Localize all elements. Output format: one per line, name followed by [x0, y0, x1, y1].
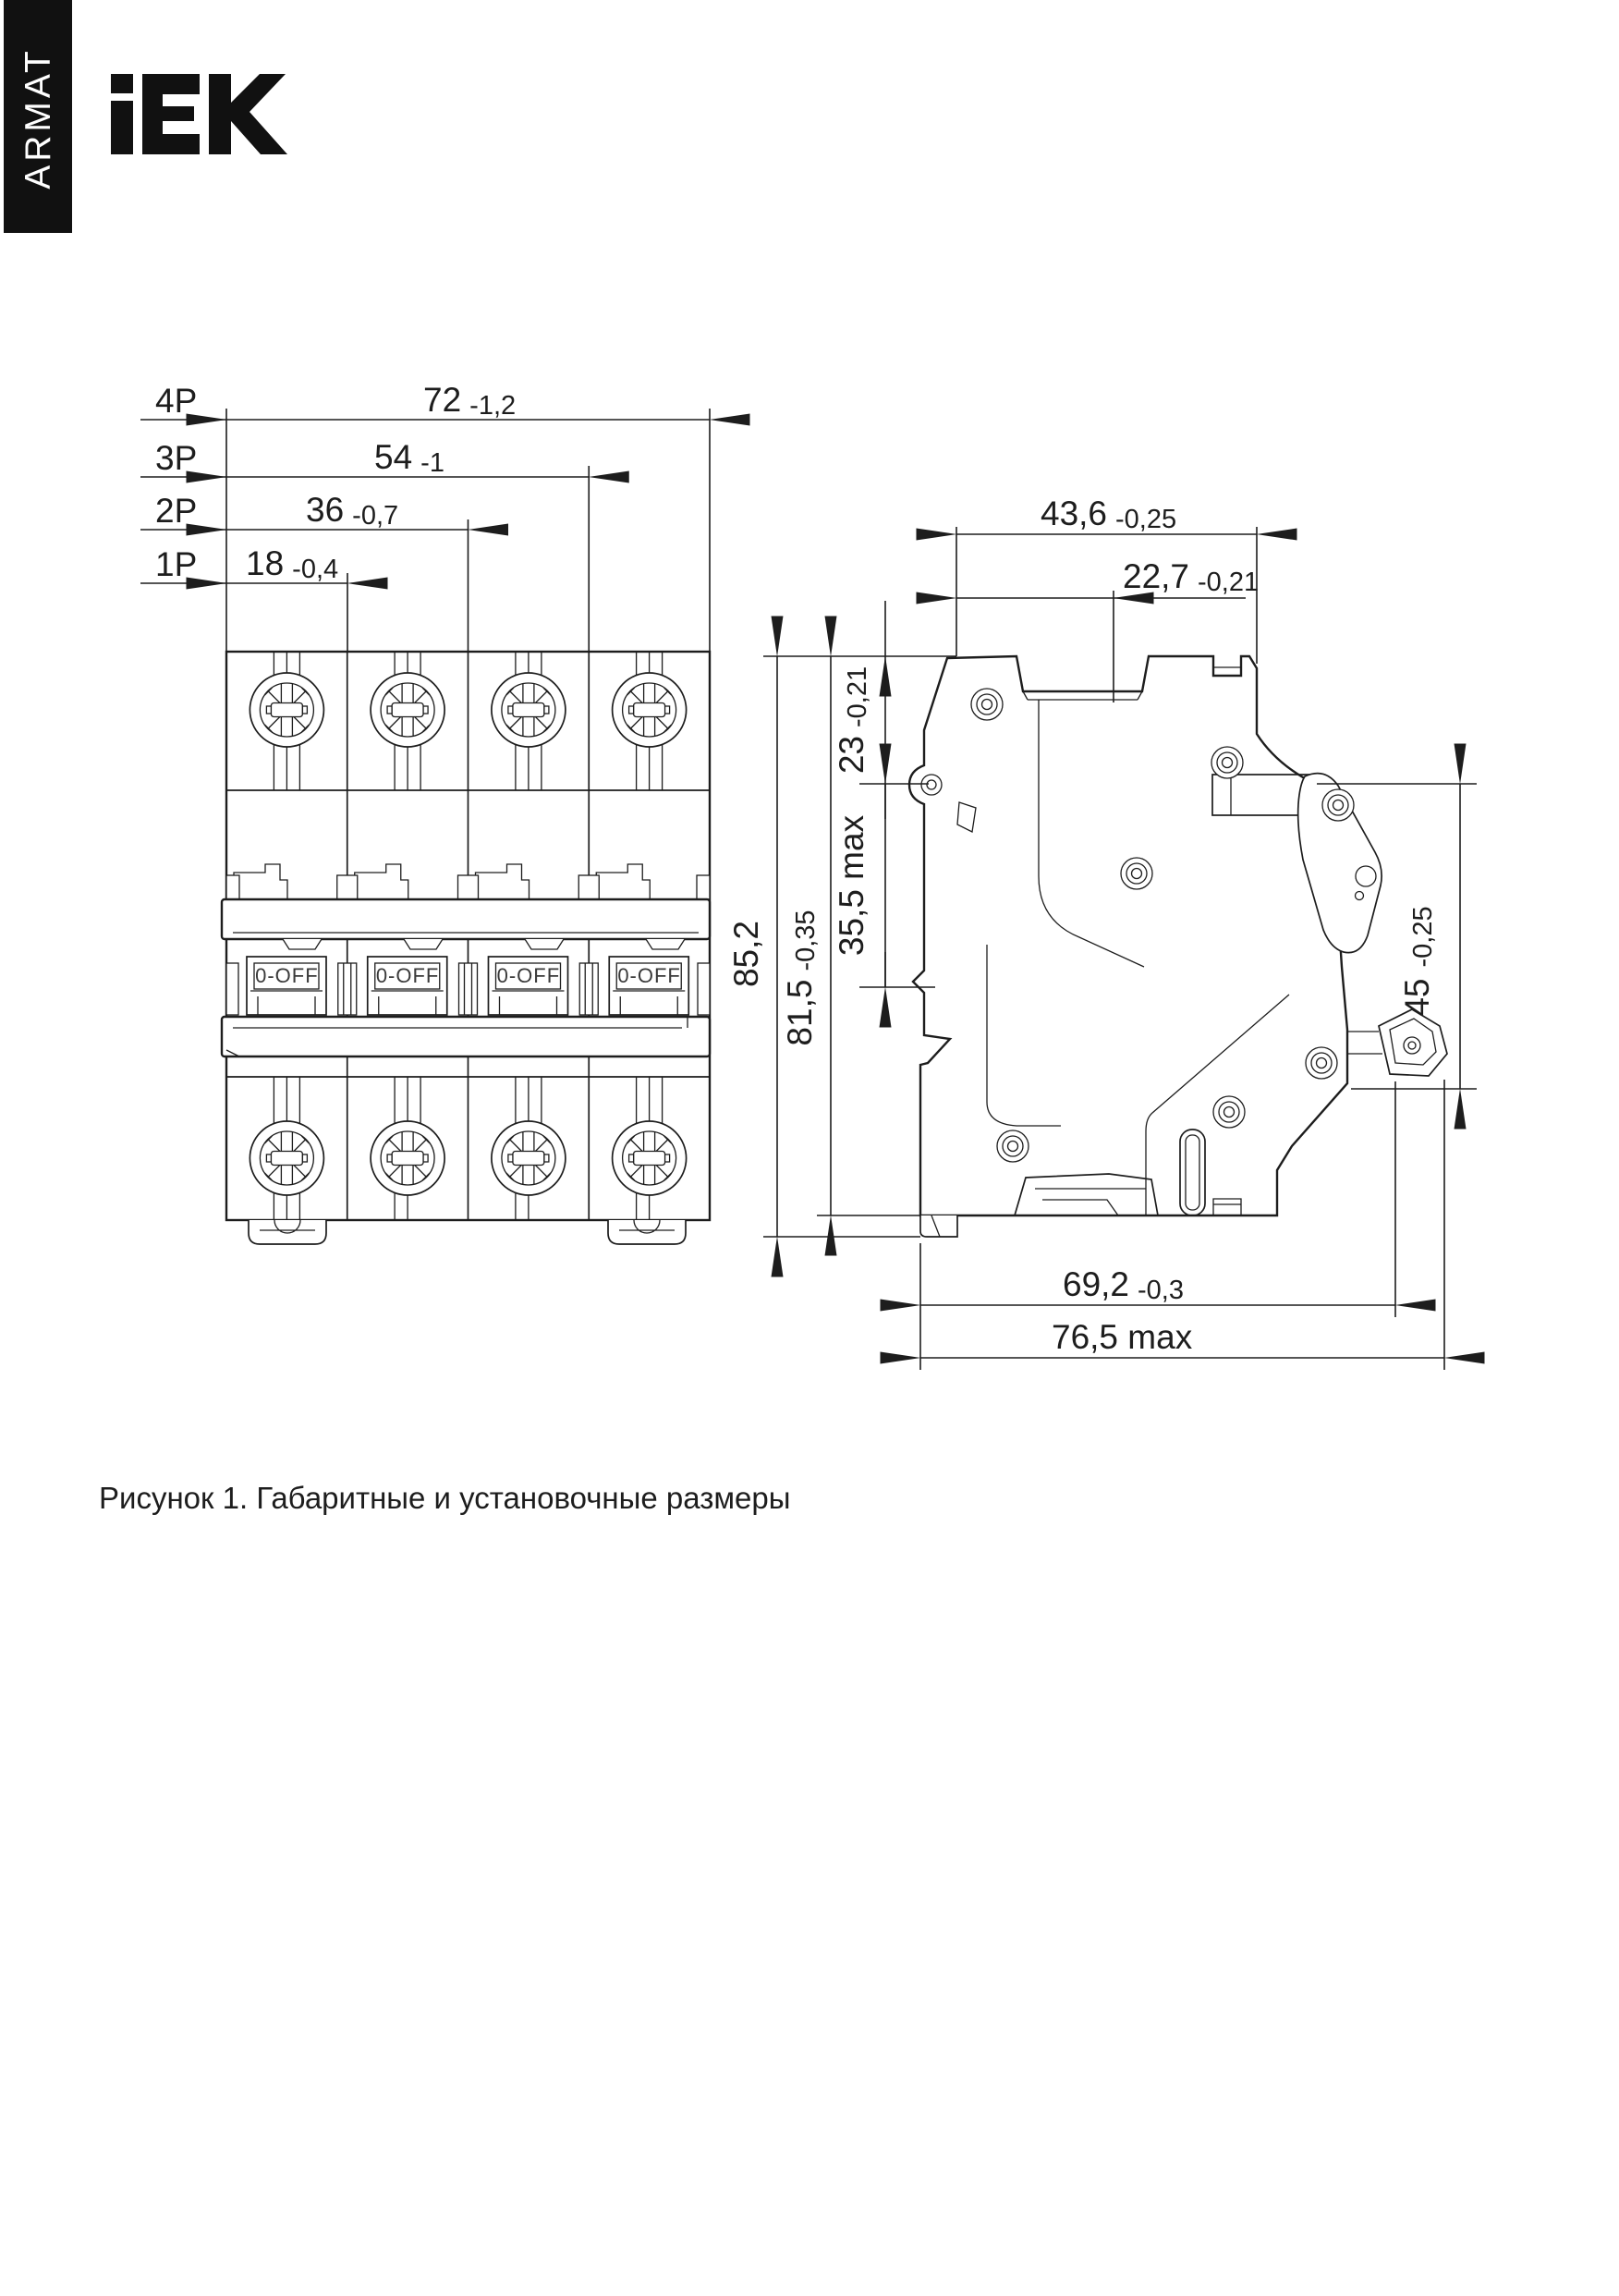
dim-value: 72-1,2: [423, 381, 516, 421]
toggle-handles: 0-OFF 0-OFF 0-OFF 0-OFF: [226, 957, 710, 1015]
side-body-outline: [909, 656, 1347, 1215]
side-din-foot: [920, 1215, 957, 1237]
dim-depth-body: 69,2-0,3: [920, 1265, 1395, 1305]
side-view: 43,6-0,25 22,7-0,21 23-0,21 35,5 max: [727, 495, 1477, 1370]
iek-logo: [111, 74, 287, 154]
brand-sidebar: ARMAT: [4, 0, 72, 233]
handle-label: 0-OFF: [376, 964, 440, 987]
pole-count-label: 1P: [155, 545, 197, 583]
pole-count-label: 4P: [155, 382, 197, 420]
dim-value: 54-1: [374, 438, 444, 478]
front-bar-lower: [222, 1017, 710, 1056]
dim-2p: 2P 36-0,7: [140, 491, 469, 531]
dim-value: 43,6-0,25: [1041, 495, 1176, 534]
handle-pole-1: 0-OFF: [247, 957, 326, 1015]
dim-width-handle: 22,7-0,21: [956, 557, 1259, 598]
pole-count-label: 2P: [155, 492, 197, 530]
dim-value: 85,2: [727, 921, 765, 987]
logo-letter-e: [142, 74, 200, 154]
dim-handle-depth: 23-0,21: [833, 601, 885, 784]
dim-value: 23-0,21: [833, 666, 872, 774]
figure-caption: Рисунок 1. Габаритные и установочные раз…: [99, 1481, 790, 1515]
logo-letter-i: [111, 74, 133, 154]
front-din-tabs: [249, 1220, 686, 1244]
dim-value: 35,5 max: [833, 814, 870, 956]
pole-count-label: 3P: [155, 439, 197, 477]
handle-label: 0-OFF: [497, 964, 561, 987]
front-view: 0-OFF 0-OFF 0-OFF 0-OFF: [140, 381, 710, 1244]
dim-1p: 1P 18-0,4: [140, 544, 347, 584]
dim-height-body: 81,5-0,35: [781, 656, 831, 1215]
dim-value: 36-0,7: [306, 491, 398, 531]
handle-pole-4: 0-OFF: [609, 957, 688, 1015]
handle-label: 0-OFF: [617, 964, 681, 987]
dim-value: 22,7-0,21: [1123, 557, 1259, 597]
dim-value: 18-0,4: [246, 544, 338, 584]
dim-value: 76,5 max: [1052, 1318, 1193, 1356]
sidebar-brand-label: ARMAT: [18, 47, 58, 189]
technical-drawing: ARMAT: [0, 0, 1619, 2296]
dim-value: 45-0,25: [1398, 906, 1438, 1016]
logo-letter-k: [209, 74, 287, 154]
dim-depth-max: 76,5 max: [920, 1318, 1444, 1358]
side-terminal-screw: [1347, 1009, 1447, 1076]
handle-label: 0-OFF: [255, 964, 319, 987]
handle-pole-2: 0-OFF: [368, 957, 447, 1015]
dim-3p: 3P 54-1: [140, 438, 589, 478]
drawing-page: ARMAT: [0, 0, 1619, 2296]
dim-height-total: 85,2: [727, 656, 777, 1237]
dim-width-top: 43,6-0,25: [956, 495, 1257, 534]
lever-pivot-rivet: [1322, 789, 1354, 821]
dim-latch-travel: 35,5 max: [833, 784, 885, 987]
dim-value: 81,5-0,35: [781, 910, 821, 1045]
dim-value: 69,2-0,3: [1063, 1265, 1184, 1305]
front-dimensions: 4P 72-1,2 3P 54-1 2P 36-0,7 1P: [140, 381, 710, 652]
handle-pole-3: 0-OFF: [489, 957, 568, 1015]
